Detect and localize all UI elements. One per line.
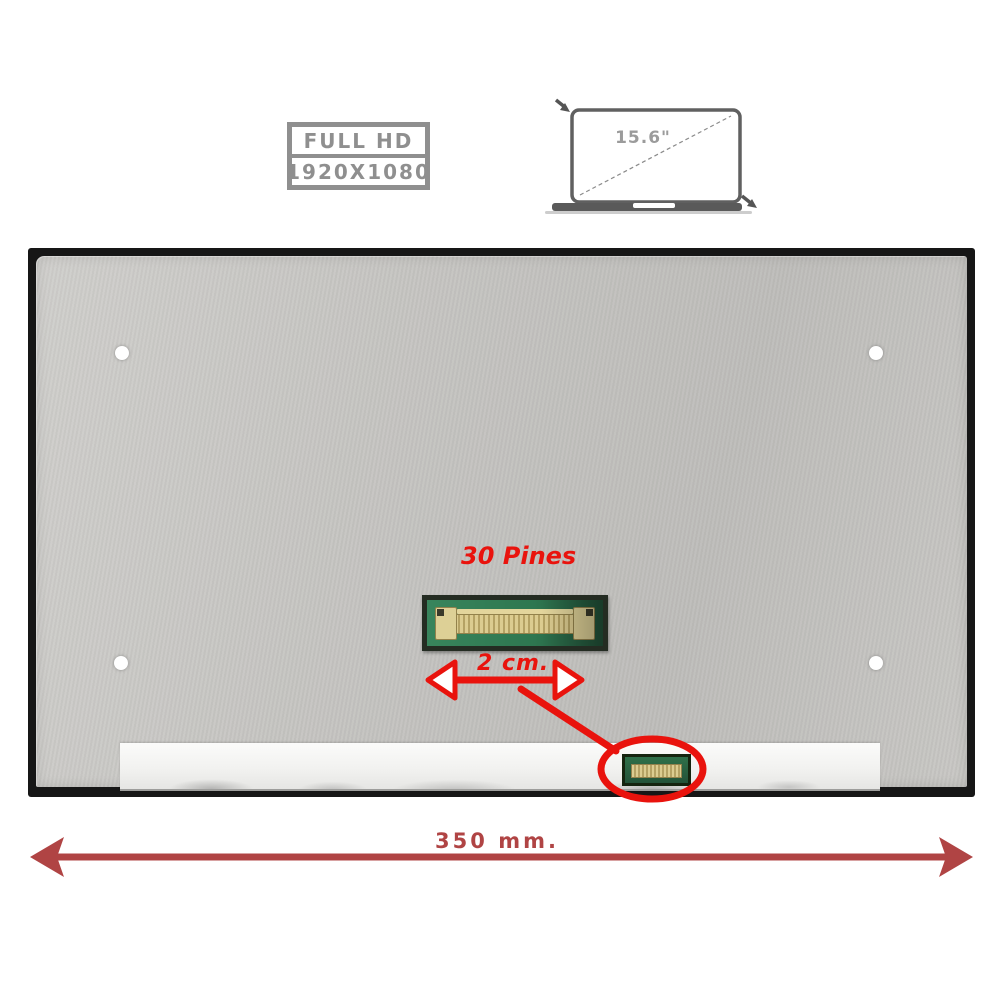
resolution-badge-line2: 1920X1080 (292, 158, 425, 185)
screen-size-label: 15.6" (615, 128, 671, 148)
corner-tick-bottom-right-icon (742, 196, 757, 208)
pins-count-label: 30 Pines (461, 542, 576, 570)
arrowhead-left-icon (30, 837, 64, 877)
resolution-badge-line1: FULL HD (292, 127, 425, 158)
laptop-screen-outline (572, 110, 740, 202)
connector-closeup-photo (422, 595, 608, 651)
foil-tape-strip (120, 743, 880, 791)
laptop-base-shadow (545, 211, 752, 214)
panel-width-label: 350 mm. (397, 829, 597, 853)
screw-hole-top-right (869, 346, 883, 360)
screw-hole-bottom-right (869, 656, 883, 670)
resolution-badge: FULL HD 1920X1080 (287, 122, 430, 190)
panel-edge-connector-pins (631, 764, 682, 778)
panel-edge-connector (622, 754, 691, 786)
screw-hole-top-left (115, 346, 129, 360)
laptop-diagram: 15.6" (545, 85, 795, 220)
corner-tick-top-left-icon (556, 100, 570, 112)
arrowhead-right-icon (939, 837, 973, 877)
screw-hole-bottom-left (114, 656, 128, 670)
connector-shadow-overlay (427, 600, 603, 646)
lcd-panel-frame (28, 248, 975, 797)
lcd-panel-back-surface (36, 256, 967, 787)
laptop-base-notch (633, 203, 675, 208)
product-image: FULL HD 1920X1080 15.6" (0, 0, 1000, 1000)
connector-width-label: 2 cm. (477, 651, 549, 676)
